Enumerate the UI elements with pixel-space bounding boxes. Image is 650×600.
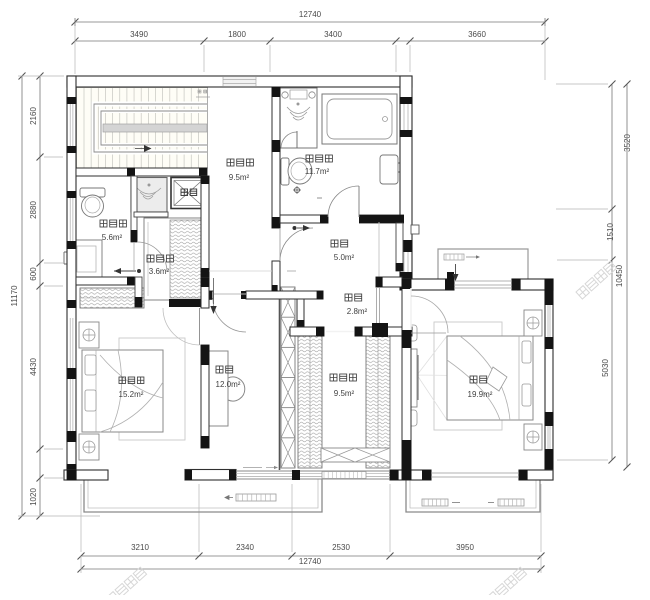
svg-text:12740: 12740 — [299, 557, 322, 566]
svg-text:1020: 1020 — [29, 488, 38, 506]
svg-text:5030: 5030 — [601, 359, 610, 377]
svg-text:4430: 4430 — [29, 358, 38, 376]
svg-text:2340: 2340 — [236, 543, 254, 552]
svg-text:12.0m²: 12.0m² — [216, 380, 241, 389]
svg-text:2160: 2160 — [29, 107, 38, 125]
svg-text:3400: 3400 — [324, 30, 342, 39]
svg-text:5.6m²: 5.6m² — [102, 233, 123, 242]
svg-text:3.6m²: 3.6m² — [149, 267, 170, 276]
svg-text:2530: 2530 — [332, 543, 350, 552]
svg-text:1800: 1800 — [228, 30, 246, 39]
svg-text:5.0m²: 5.0m² — [334, 253, 355, 262]
svg-text:19.9m²: 19.9m² — [468, 390, 493, 399]
svg-text:9.5m²: 9.5m² — [334, 389, 355, 398]
svg-text:1510: 1510 — [606, 223, 615, 241]
svg-text:3490: 3490 — [130, 30, 148, 39]
svg-text:2880: 2880 — [29, 201, 38, 219]
svg-text:15.2m²: 15.2m² — [119, 390, 144, 399]
svg-text:2.8m²: 2.8m² — [347, 307, 368, 316]
svg-text:3950: 3950 — [456, 543, 474, 552]
svg-text:3520: 3520 — [623, 134, 632, 152]
svg-text:11170: 11170 — [10, 285, 19, 307]
svg-text:12740: 12740 — [299, 10, 322, 19]
svg-text:600: 600 — [29, 267, 38, 281]
svg-text:3210: 3210 — [131, 543, 149, 552]
svg-text:11.7m²: 11.7m² — [305, 167, 330, 176]
svg-text:9.5m²: 9.5m² — [229, 173, 250, 182]
svg-text:3660: 3660 — [468, 30, 486, 39]
